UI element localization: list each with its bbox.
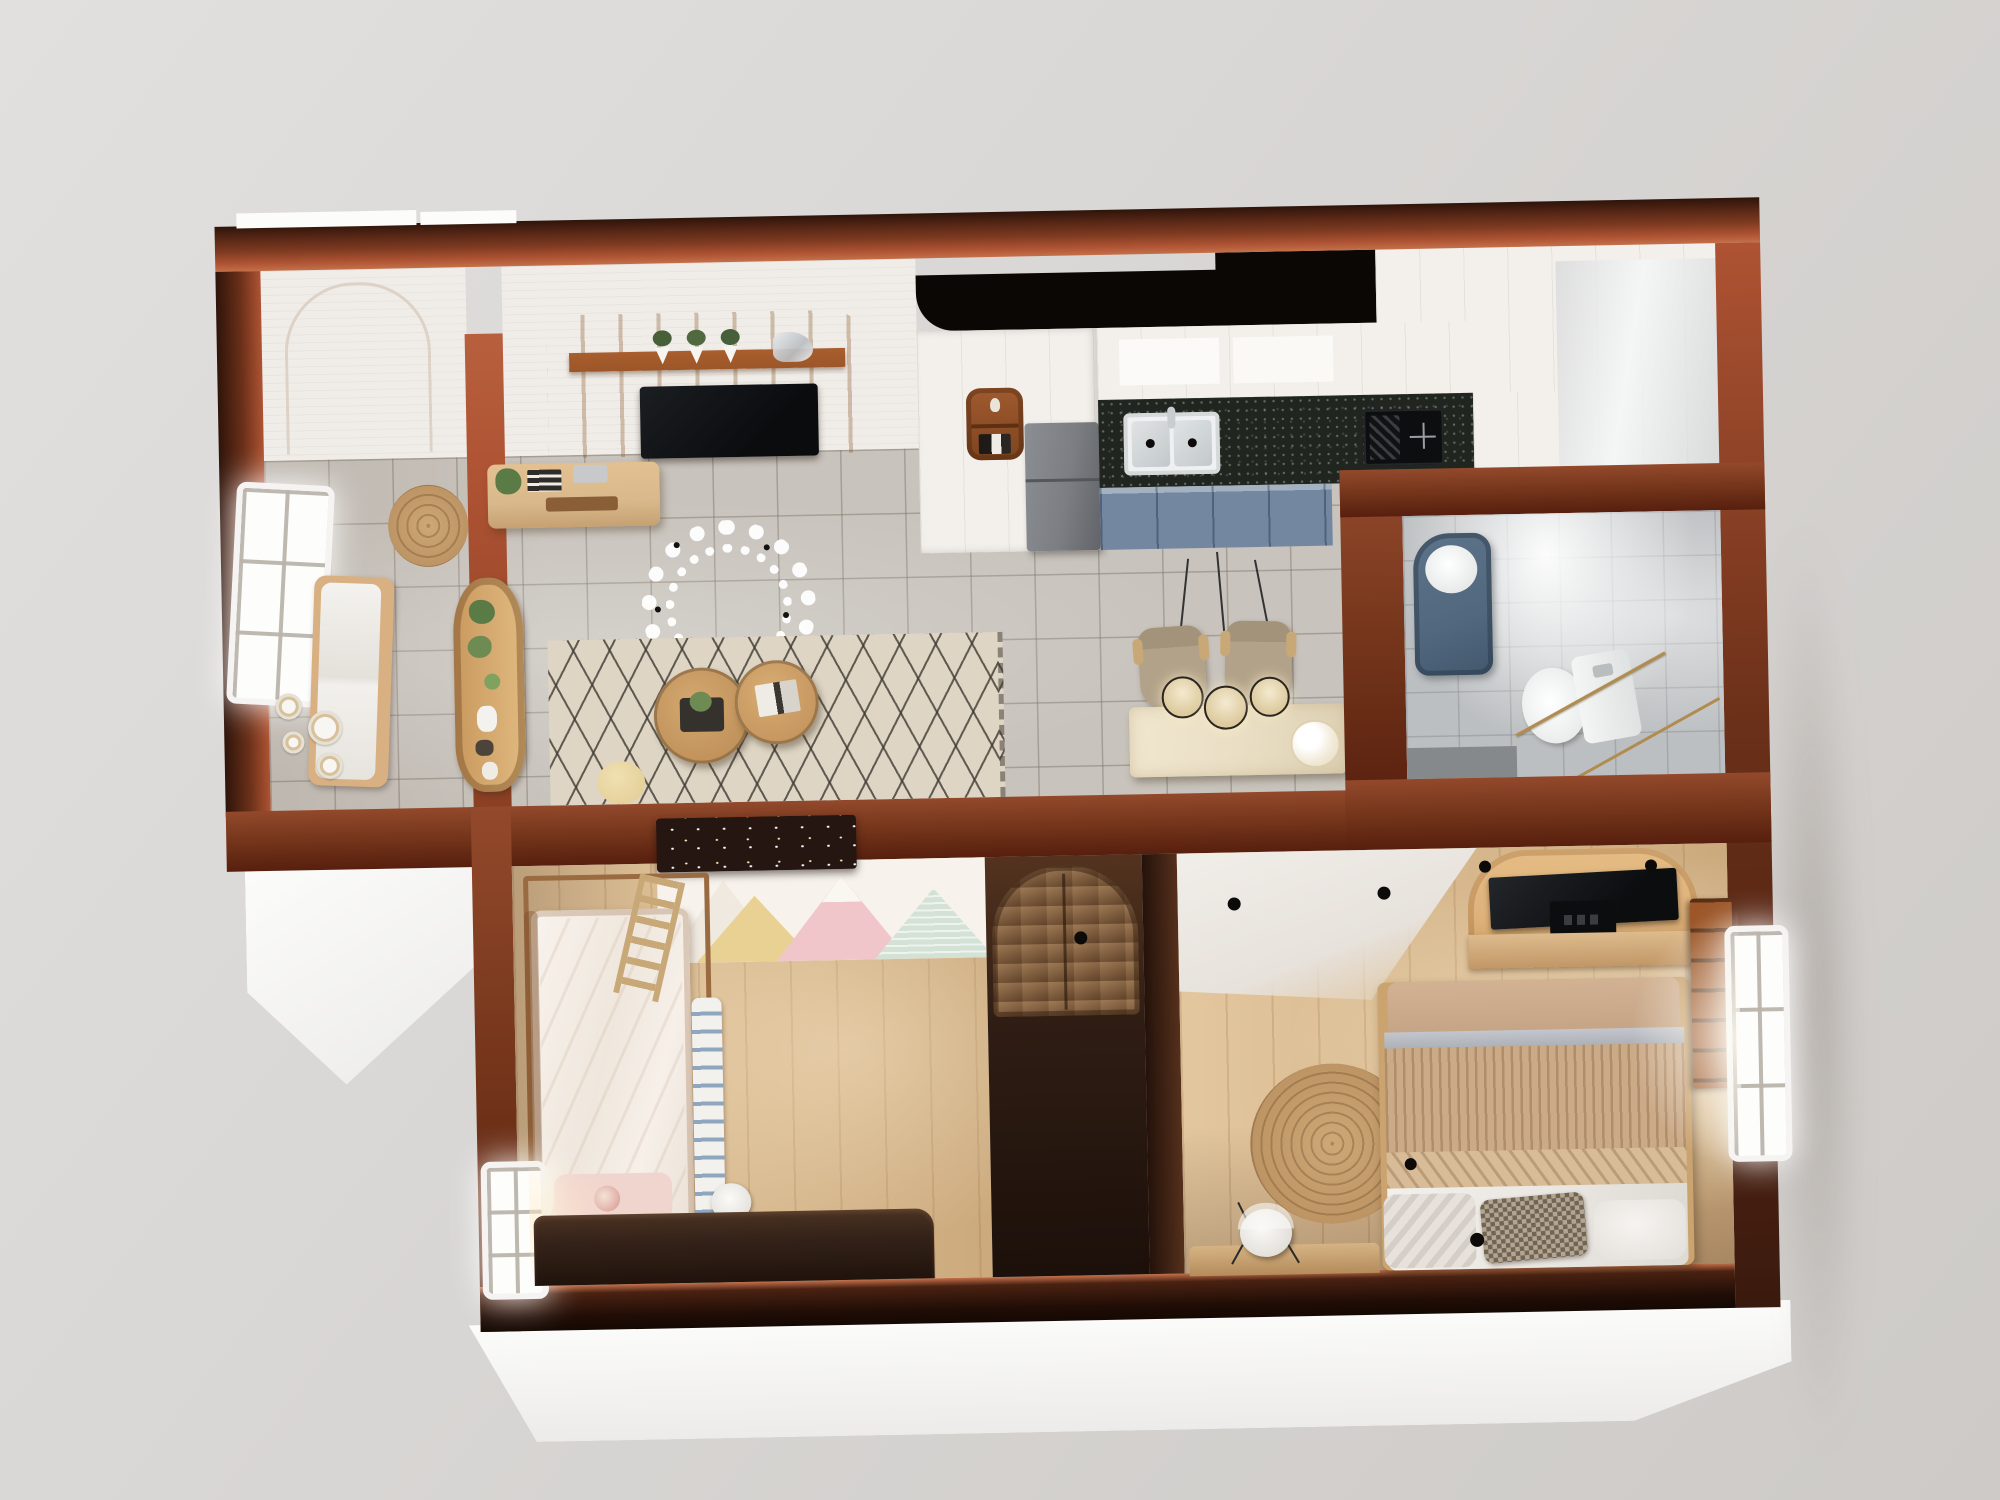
- kids-loft-cabinet-with-lights: [656, 815, 857, 873]
- niche-shelf-line: [971, 424, 1018, 429]
- render-stage: [0, 0, 2000, 1500]
- kitchen-blue-base-cabinets: [1100, 484, 1333, 550]
- toilet-flush-button: [1592, 663, 1614, 678]
- shelf-decor-dark: [475, 740, 493, 756]
- wardrobe-knob: [1074, 931, 1087, 944]
- bed-houndstooth-pillow: [1479, 1191, 1588, 1264]
- master-window-glow: [1628, 908, 1743, 1170]
- console-books: [527, 469, 561, 492]
- wall-bathroom-south: [1345, 772, 1771, 850]
- mountain-mint: [873, 887, 986, 959]
- master-desk-chair: [1233, 1202, 1298, 1261]
- shelf-plant-2: [467, 636, 491, 658]
- niche-decor-items: [979, 434, 1011, 455]
- chair-arm-right: [1198, 634, 1210, 661]
- bed-crumpled-blanket: [1383, 1193, 1476, 1269]
- entry-arch-display-shelf: [452, 577, 526, 792]
- shelf-plant-3: [484, 674, 500, 690]
- chair-arm-left: [1132, 639, 1144, 666]
- console-laptop: [573, 464, 607, 483]
- wardrobe-door-seam: [1062, 874, 1068, 1010]
- entry-arch-outline: [284, 281, 433, 455]
- refrigerator: [1024, 422, 1100, 551]
- chair-arm-left: [1220, 630, 1230, 656]
- kitchen-arched-niche: [966, 387, 1024, 460]
- mountain-pink-snowcap: [821, 876, 861, 903]
- hallway-arched-wardrobe: [991, 864, 1140, 1017]
- upper-cabinet-reflection-2: [1233, 335, 1334, 383]
- upper-cabinet-reflection-1: [1119, 338, 1220, 386]
- fridge-door-split: [1025, 478, 1099, 482]
- foundation-slab-entry: [245, 858, 493, 1087]
- wall-bathroom-north: [1339, 462, 1765, 517]
- cooktop-grate-hatch: [1369, 415, 1400, 460]
- console-plant: [495, 468, 521, 494]
- shelf-decor-white-2: [482, 762, 498, 780]
- sink-drain-left: [1146, 439, 1155, 448]
- kids-dark-desk: [534, 1208, 935, 1286]
- niche-pendant-lamp: [990, 398, 1000, 412]
- sink-faucet: [1167, 407, 1175, 429]
- living-television: [640, 383, 819, 458]
- shelf-plant-1: [469, 600, 495, 624]
- vanity-round-basin: [1425, 545, 1478, 594]
- console-open-shelf: [546, 496, 618, 511]
- chair-arm-right: [1286, 631, 1296, 657]
- media-console: [487, 461, 660, 528]
- kitchen-corner-window-light: [1555, 258, 1719, 479]
- wall-bathroom-west: [1339, 469, 1408, 815]
- shower-floor-strip: [1407, 746, 1518, 779]
- kitchen-ceiling-recess-right: [1215, 250, 1376, 326]
- coffee-table-magazine: [754, 679, 801, 717]
- bathroom-blue-vanity: [1413, 532, 1494, 675]
- kitchen-sink: [1123, 412, 1220, 476]
- shelf-decor-white-1: [477, 706, 497, 732]
- balcony-slab-notch-2: [420, 210, 516, 225]
- cooktop-burner-cross: [1409, 423, 1435, 449]
- media-device-buttons: [1564, 914, 1602, 925]
- apartment-model: [214, 197, 1780, 1336]
- kitchen-ceiling-recess-left: [916, 270, 1222, 332]
- kitchen-upper-cabinet-band: [1097, 321, 1473, 400]
- chair-back-arc: [1237, 1202, 1293, 1229]
- chair-leg-2: [1287, 1243, 1300, 1263]
- gas-cooktop: [1363, 408, 1444, 466]
- entry-bench-cushion: [315, 582, 381, 780]
- bed-white-pillow: [1593, 1199, 1686, 1261]
